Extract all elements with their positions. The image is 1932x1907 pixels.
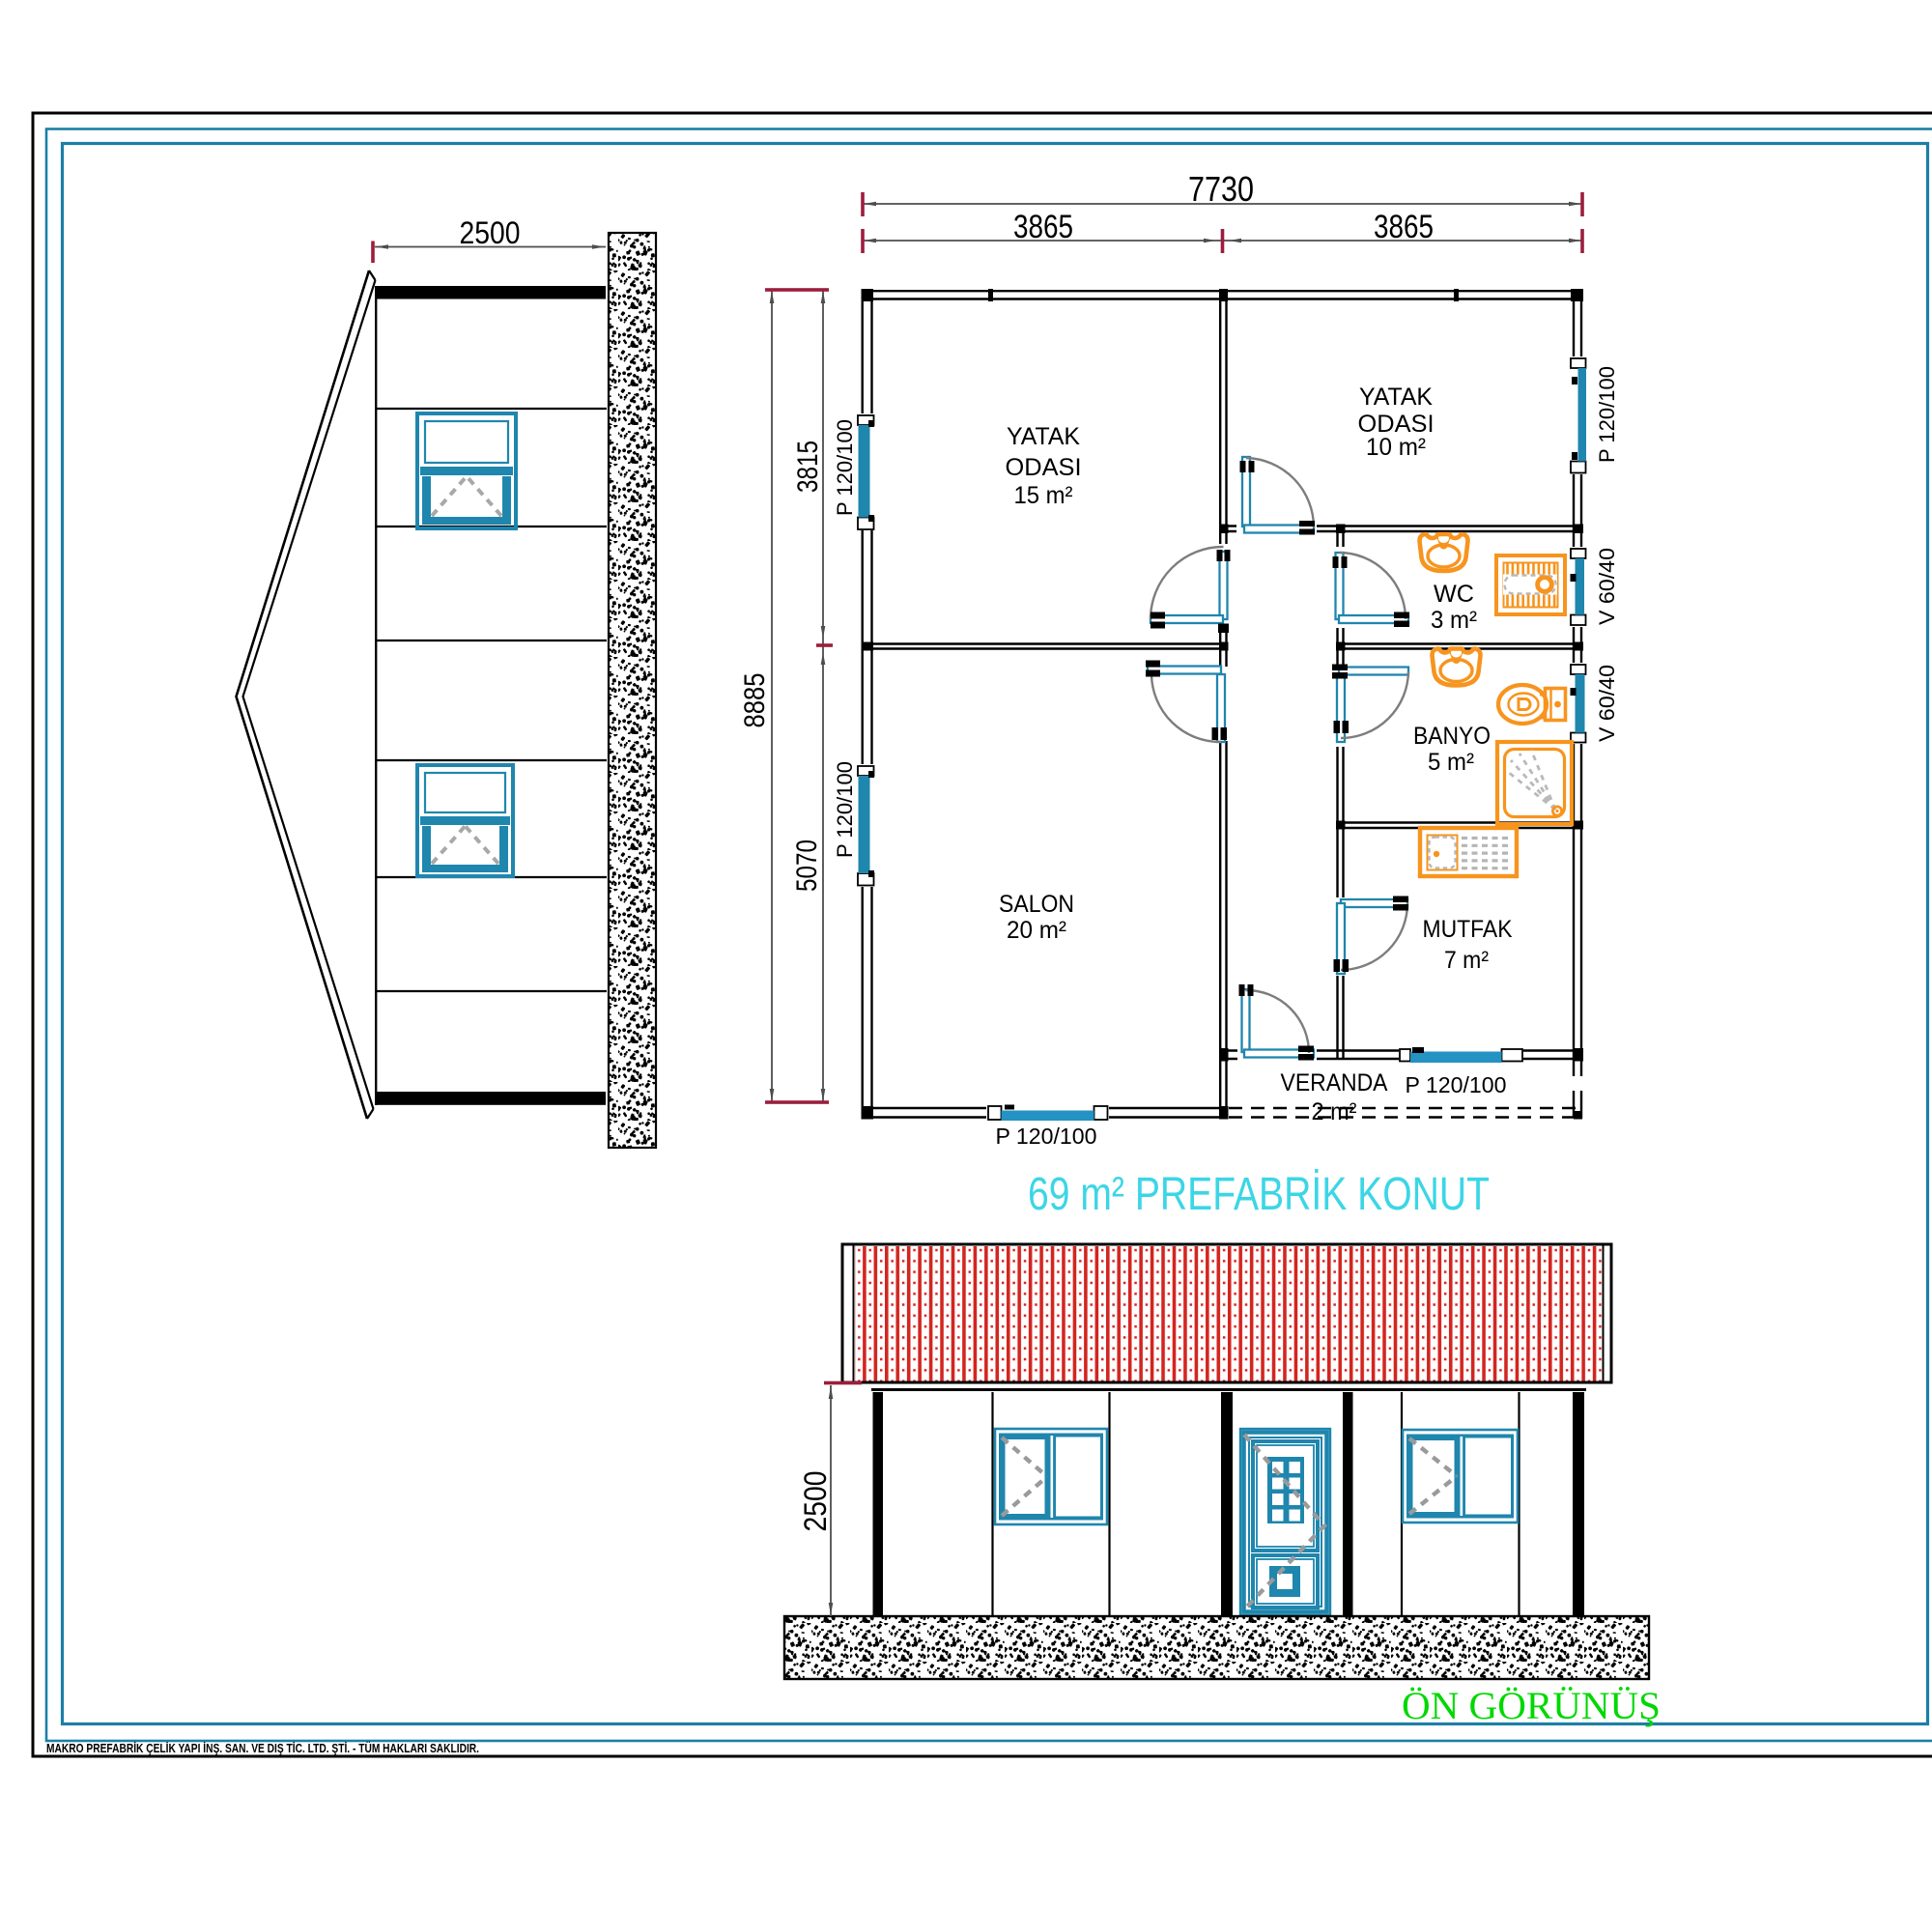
svg-text:3865: 3865	[1374, 209, 1434, 245]
svg-text:3 m²: 3 m²	[1431, 607, 1477, 634]
svg-text:P 120/100: P 120/100	[1406, 1072, 1507, 1097]
svg-text:V 60/40: V 60/40	[1595, 548, 1619, 625]
svg-text:5 m²: 5 m²	[1428, 749, 1474, 776]
svg-text:7730: 7730	[1188, 169, 1254, 209]
svg-text:SALON: SALON	[999, 891, 1074, 918]
svg-text:5070: 5070	[791, 840, 823, 892]
svg-text:69 m² PREFABRİK KONUT: 69 m² PREFABRİK KONUT	[1028, 1169, 1490, 1220]
svg-text:MAKRO PREFABRİK ÇELİK YAPI İNŞ: MAKRO PREFABRİK ÇELİK YAPI İNŞ. SAN. VE …	[46, 1741, 479, 1755]
svg-text:15 m²: 15 m²	[1014, 482, 1073, 509]
svg-text:P 120/100: P 120/100	[1595, 366, 1619, 463]
svg-text:10 m²: 10 m²	[1366, 434, 1426, 461]
svg-text:8885: 8885	[739, 673, 771, 728]
svg-text:BANYO: BANYO	[1413, 723, 1491, 750]
svg-text:V 60/40: V 60/40	[1595, 665, 1619, 742]
svg-text:P 120/100: P 120/100	[996, 1124, 1097, 1149]
svg-text:WC: WC	[1434, 581, 1474, 608]
svg-text:2500: 2500	[460, 215, 521, 250]
svg-text:3815: 3815	[792, 441, 824, 493]
svg-text:ÖN GÖRÜNÜŞ: ÖN GÖRÜNÜŞ	[1402, 1684, 1661, 1727]
svg-text:MUTFAK: MUTFAK	[1423, 916, 1513, 943]
svg-text:YATAK: YATAK	[1007, 423, 1080, 450]
svg-text:ODASI: ODASI	[1006, 454, 1082, 481]
svg-text:P 120/100: P 120/100	[833, 761, 857, 858]
svg-text:YATAK: YATAK	[1359, 384, 1433, 411]
svg-text:P 120/100: P 120/100	[833, 419, 857, 516]
svg-text:20 m²: 20 m²	[1007, 917, 1066, 944]
svg-text:VERANDA: VERANDA	[1281, 1069, 1388, 1096]
svg-text:3865: 3865	[1013, 209, 1073, 245]
svg-text:2500: 2500	[798, 1471, 833, 1532]
svg-text:2 m²: 2 m²	[1312, 1098, 1357, 1125]
svg-text:7 m²: 7 m²	[1444, 947, 1489, 974]
